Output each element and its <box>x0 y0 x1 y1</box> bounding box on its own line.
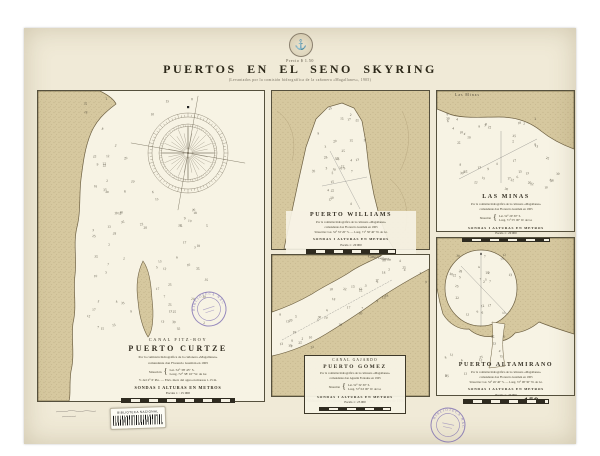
svg-text:7: 7 <box>107 262 110 266</box>
svg-text:22: 22 <box>510 178 514 182</box>
chart-title: PUERTO WILLIAMS <box>286 212 416 220</box>
title-block-curtze: CANAL FITZ-ROY PUERTO CURTZE Por la comi… <box>93 337 263 403</box>
scale-label: Escala 1 : 20 000 <box>444 231 568 235</box>
svg-text:15: 15 <box>286 319 290 323</box>
svg-text:20: 20 <box>131 179 135 183</box>
title-block-gomez: CANAL GAJARDO PUERTO GOMEZ Por la comisi… <box>304 355 406 414</box>
longitude: Long. 71° 55' 00" W. de Gr. <box>499 218 532 222</box>
anchor-icon: ⚓ <box>295 40 307 51</box>
svg-text:5: 5 <box>156 265 158 269</box>
svg-text:28: 28 <box>144 226 148 230</box>
svg-text:25: 25 <box>464 170 468 174</box>
svg-text:6: 6 <box>447 119 449 123</box>
svg-text:10: 10 <box>187 263 191 268</box>
svg-text:8: 8 <box>444 355 447 359</box>
svg-text:22: 22 <box>103 162 107 166</box>
svg-text:35: 35 <box>512 134 516 138</box>
svg-text:25: 25 <box>168 302 172 307</box>
svg-text:18: 18 <box>292 330 296 334</box>
svg-text:7: 7 <box>163 295 165 299</box>
svg-text:9: 9 <box>97 163 99 167</box>
svg-text:30: 30 <box>318 315 322 319</box>
units-note: SONDAS I ALTURAS EN METROS <box>308 395 402 400</box>
svg-text:12: 12 <box>341 164 345 168</box>
compass-rose <box>131 96 245 210</box>
svg-text:6: 6 <box>152 190 154 194</box>
svg-text:15: 15 <box>330 180 334 184</box>
svg-text:13: 13 <box>492 342 496 346</box>
svg-text:8: 8 <box>279 313 282 317</box>
svg-text:13: 13 <box>158 259 162 263</box>
navy-seal-icon: ⚓ <box>289 33 313 57</box>
station-dot <box>480 253 482 255</box>
svg-text:13: 13 <box>155 197 159 201</box>
longitude: Long. 72° 38' 10" W. de Gr. <box>169 372 207 376</box>
svg-text:8: 8 <box>191 97 193 101</box>
svg-text:4: 4 <box>456 117 458 121</box>
svg-text:3: 3 <box>92 228 94 232</box>
position-block: Situación{ Lat. 52° 38' 45" S. Long. 72°… <box>93 367 263 377</box>
svg-text:10: 10 <box>309 336 313 340</box>
svg-text:4: 4 <box>399 259 402 263</box>
svg-text:18: 18 <box>196 244 200 248</box>
svg-text:9: 9 <box>478 125 480 129</box>
svg-text:18: 18 <box>459 130 463 135</box>
svg-text:17: 17 <box>183 241 187 245</box>
barcode-icon <box>113 414 163 426</box>
svg-text:2: 2 <box>115 143 118 147</box>
svg-text:17: 17 <box>156 287 160 291</box>
svg-text:30: 30 <box>504 187 508 192</box>
scale-bar <box>463 399 549 404</box>
svg-text:35: 35 <box>177 327 181 331</box>
map-panel-puerto-curtze: 1865935422173021098225132513835176251535… <box>37 90 265 402</box>
svg-text:22: 22 <box>140 222 144 226</box>
scale-label: Escala 1 : 20 000 <box>444 393 568 397</box>
sheet-subtitle: (Levantados por la comisión hidrográfica… <box>24 78 576 82</box>
svg-text:18: 18 <box>329 287 333 291</box>
svg-text:3: 3 <box>365 284 368 288</box>
svg-text:2: 2 <box>523 122 525 126</box>
svg-text:13: 13 <box>502 311 506 315</box>
map-panel-puerto-williams: 1513255915223415252513210201549171028343… <box>271 90 430 250</box>
svg-text:10: 10 <box>330 196 334 200</box>
svg-text:12: 12 <box>106 154 110 158</box>
svg-text:12: 12 <box>502 253 506 257</box>
svg-text:8: 8 <box>459 163 461 167</box>
svg-text:25: 25 <box>93 154 97 158</box>
svg-text:13: 13 <box>279 342 283 346</box>
svg-text:15: 15 <box>349 139 353 143</box>
scale-bar <box>462 238 550 243</box>
svg-text:10: 10 <box>94 274 98 278</box>
svg-text:35: 35 <box>94 254 98 258</box>
svg-text:13: 13 <box>112 323 116 327</box>
svg-text:18: 18 <box>517 121 521 126</box>
svg-text:18: 18 <box>93 184 97 188</box>
svg-text:13: 13 <box>534 144 538 149</box>
svg-text:15: 15 <box>101 327 105 331</box>
svg-text:9: 9 <box>487 167 489 171</box>
scale-bar <box>319 407 391 412</box>
region-label: CANAL GAJARDO <box>308 358 402 363</box>
svg-text:3: 3 <box>97 299 100 303</box>
svg-text:22: 22 <box>343 287 347 291</box>
svg-text:15: 15 <box>165 99 169 103</box>
situacion-label: Situación <box>480 217 491 221</box>
svg-text:15: 15 <box>382 295 386 299</box>
svg-text:35: 35 <box>312 169 316 173</box>
scale-bar <box>121 398 235 403</box>
svg-text:8: 8 <box>291 339 293 343</box>
credit-line: comandante don Florencio Guzmán en 1905 <box>93 361 263 365</box>
svg-text:30: 30 <box>460 171 464 176</box>
longitude: Long. 72° 04' 00" W. de Gr. <box>348 387 381 391</box>
svg-text:7: 7 <box>97 325 99 329</box>
map-panel-puerto-altamirano: 2213123254281228307136221257177309213213… <box>436 237 575 396</box>
map-panel-las-minas: 2922917483091344422221810202217104308221… <box>436 90 575 232</box>
tide-note: V. del 2° 6' Pte. — Elev. med. del agua … <box>93 378 263 382</box>
svg-text:9: 9 <box>130 309 132 313</box>
barcode-sticker: BIBLIOTECA NACIONAL <box>110 406 167 430</box>
svg-text:22: 22 <box>457 140 461 145</box>
position-block: Situación{ Lat. 52° 29' 30" S. Long. 71°… <box>444 213 568 223</box>
svg-text:10: 10 <box>544 185 548 189</box>
svg-text:10: 10 <box>188 219 192 223</box>
svg-text:18: 18 <box>114 211 118 215</box>
svg-text:4: 4 <box>496 162 498 166</box>
svg-text:18: 18 <box>332 297 336 301</box>
svg-text:30: 30 <box>339 323 343 327</box>
svg-text:6: 6 <box>180 224 182 228</box>
title-block-minas: LAS MINAS Por la comisión hidrográfica d… <box>444 193 568 242</box>
svg-text:35: 35 <box>121 301 125 305</box>
svg-text:8: 8 <box>124 190 126 194</box>
svg-text:12: 12 <box>449 353 453 358</box>
credit-line: comandante don Florencio Guzmán en 1905 <box>444 208 568 212</box>
svg-text:6: 6 <box>516 175 519 179</box>
svg-text:22: 22 <box>359 288 363 292</box>
svg-text:9: 9 <box>176 256 178 260</box>
svg-text:13: 13 <box>477 165 481 170</box>
svg-text:25: 25 <box>402 266 406 270</box>
situacion-label: Situación <box>329 386 340 390</box>
units-note: SONDAS I ALTURAS EN METROS <box>93 385 263 390</box>
chart-sheet: ⚓ Precio $ 1.50 PUERTOS EN EL SENO SKYRI… <box>24 28 576 444</box>
svg-text:30: 30 <box>172 320 176 324</box>
scale-label: Escala 1 : 15 000 <box>93 391 263 396</box>
svg-text:35: 35 <box>121 220 125 224</box>
svg-text:13: 13 <box>351 285 355 289</box>
units-note: SONDAS I ALTURAS EN METROS <box>286 237 416 242</box>
svg-text:17: 17 <box>347 306 351 310</box>
svg-text:12: 12 <box>87 314 91 319</box>
sheet-title: PUERTOS EN EL SENO SKYRING <box>24 62 576 77</box>
svg-text:9: 9 <box>290 344 293 348</box>
svg-text:2: 2 <box>108 243 110 247</box>
position-block: Situación{ Lat. 52° 32' 30" S. Long. 72°… <box>308 382 402 392</box>
svg-text:20: 20 <box>124 156 128 161</box>
svg-text:25: 25 <box>455 284 459 288</box>
scale-bar <box>306 249 396 254</box>
svg-text:17: 17 <box>512 159 516 164</box>
svg-text:17: 17 <box>507 176 511 180</box>
svg-text:12: 12 <box>163 267 167 272</box>
chart-title: LAS MINAS <box>444 194 568 202</box>
svg-text:25: 25 <box>342 149 346 153</box>
chart-title: PUERTO ALTAMIRANO <box>444 362 568 370</box>
svg-text:20: 20 <box>105 190 109 194</box>
svg-text:22: 22 <box>298 340 302 345</box>
svg-text:2: 2 <box>301 337 303 341</box>
svg-text:4: 4 <box>115 300 117 304</box>
svg-text:6: 6 <box>481 311 483 315</box>
svg-text:22: 22 <box>453 273 457 277</box>
svg-text:6: 6 <box>326 308 329 312</box>
chart-title: PUERTO GOMEZ <box>308 364 402 371</box>
units-note: SONDAS I ALTURAS EN METROS <box>444 387 568 392</box>
svg-text:4: 4 <box>463 132 466 136</box>
svg-text:18: 18 <box>382 271 386 275</box>
svg-text:30: 30 <box>556 172 560 176</box>
svg-text:22: 22 <box>488 125 492 129</box>
svg-text:35: 35 <box>204 278 208 282</box>
credit-line: Por la comisión hidrográfica de la cañon… <box>93 355 263 359</box>
svg-text:2: 2 <box>106 179 108 183</box>
svg-text:35: 35 <box>196 267 200 271</box>
svg-text:15: 15 <box>481 176 485 181</box>
svg-text:5: 5 <box>295 315 297 319</box>
svg-text:2: 2 <box>512 139 515 143</box>
svg-text:13: 13 <box>107 225 111 229</box>
svg-text:10: 10 <box>467 135 471 139</box>
svg-text:13: 13 <box>508 273 512 277</box>
map-panel-puerto-gomez: 5138201810823552291530221818201331222101… <box>271 254 430 397</box>
island-spit <box>137 261 153 337</box>
svg-text:25: 25 <box>92 234 96 238</box>
handwritten-note <box>54 408 100 420</box>
latitude: Lat. 52° 38' 45" S. <box>169 368 194 372</box>
svg-text:25: 25 <box>168 283 172 287</box>
svg-text:20: 20 <box>192 208 196 213</box>
scale-label: Escala 1 : 20 000 <box>286 243 416 247</box>
svg-text:17: 17 <box>92 308 96 312</box>
svg-text:8: 8 <box>101 127 104 131</box>
svg-text:13: 13 <box>500 257 504 261</box>
position-line: Situación: Lat. 52° 26' 40" S. — Long. 7… <box>444 381 568 385</box>
position-line: Situación: Lat. 52° 33' 20" S. — Long. 7… <box>286 231 416 235</box>
place-label: Las Minas <box>455 93 480 97</box>
svg-text:22: 22 <box>546 156 550 161</box>
svg-text:15: 15 <box>340 117 344 121</box>
svg-text:9: 9 <box>184 216 186 220</box>
region-label: CANAL FITZ-ROY <box>93 337 263 343</box>
svg-text:2: 2 <box>123 256 126 260</box>
title-block-altamirano: PUERTO ALTAMIRANO Por la comisión hidrog… <box>444 361 568 404</box>
credit-line: comandante don Agustín Fontaine en 1905 <box>308 377 402 381</box>
svg-text:13: 13 <box>161 319 165 324</box>
situacion-label: Situación <box>149 370 162 374</box>
svg-text:5: 5 <box>206 224 208 228</box>
svg-text:22: 22 <box>474 180 478 185</box>
beacon-mark <box>187 106 189 108</box>
svg-text:13: 13 <box>525 171 529 176</box>
svg-text:10: 10 <box>324 316 328 321</box>
svg-text:22: 22 <box>455 296 459 300</box>
svg-text:10: 10 <box>151 112 155 116</box>
svg-text:4: 4 <box>452 126 454 130</box>
svg-text:25: 25 <box>173 310 177 314</box>
svg-text:25: 25 <box>518 169 522 173</box>
svg-text:22: 22 <box>530 182 534 186</box>
svg-text:3: 3 <box>105 270 108 274</box>
svg-text:28: 28 <box>113 231 117 235</box>
title-block-williams: PUERTO WILLIAMS Por la comisión hidrográ… <box>286 211 416 254</box>
scale-label: Escala 1 : 25 000 <box>308 400 402 404</box>
chart-title: PUERTO CURTZE <box>93 344 263 354</box>
svg-text:2: 2 <box>388 267 390 271</box>
units-note: SONDAS I ALTURAS EN METROS <box>444 226 568 231</box>
library-stamp: BIBLIOTECA NACIONAL <box>425 402 470 447</box>
